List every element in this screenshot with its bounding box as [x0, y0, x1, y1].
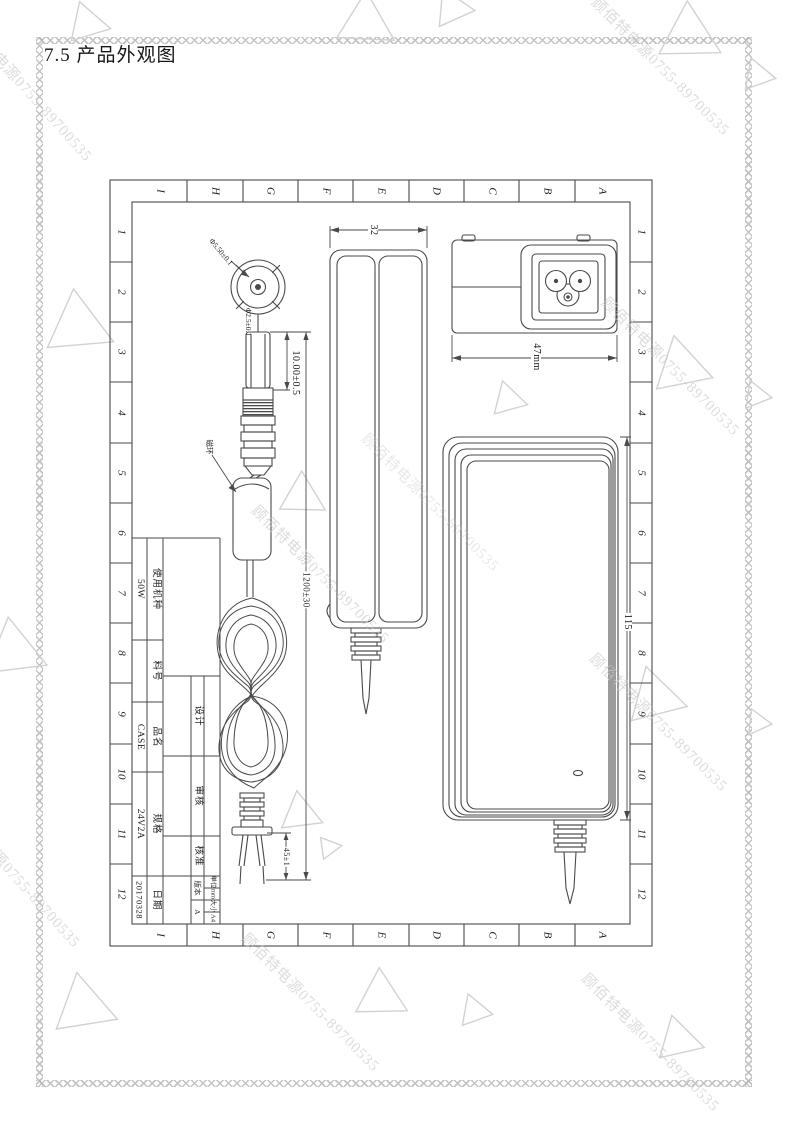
zone-letter: F: [321, 188, 332, 195]
titleblock-label-spec: 规格: [150, 813, 160, 834]
titleblock-label-version: 版本: [193, 881, 201, 896]
titleblock-label-name: 品名: [150, 726, 160, 747]
titleblock-value-machine: 50W: [134, 579, 144, 599]
titleblock-label-design: 设计: [192, 705, 202, 726]
titleblock-label-approve: 核准: [192, 845, 202, 866]
zone-letter: E: [376, 188, 387, 195]
zone-letter: I: [155, 933, 166, 937]
inlet-view: [452, 235, 617, 333]
titleblock-label-date: 日期: [150, 889, 160, 910]
zone-letter: A: [597, 932, 608, 939]
zone-letter: C: [487, 931, 498, 938]
zone-letter: B: [542, 932, 553, 939]
zone-number: 7: [636, 590, 647, 596]
zone-letter: D: [431, 931, 442, 939]
dim-plug-inner-dia: Φ2.5±0.1: [244, 307, 252, 337]
dim-inlet-width: 47mm: [531, 342, 541, 372]
titleblock-label-unit: 单位: [209, 876, 216, 889]
zone-number: 7: [116, 590, 127, 596]
titleblock-value-date: 20170328: [135, 881, 144, 919]
dim-front-length: 115: [622, 613, 632, 631]
titleblock-label-size: 大小: [209, 900, 216, 913]
zone-letter: I: [155, 189, 166, 193]
dim-side-thickness: 32: [368, 224, 378, 237]
zone-letter: F: [321, 932, 332, 939]
titleblock-value-spec: 24V2A: [134, 809, 144, 839]
zone-letter: C: [487, 187, 498, 194]
zone-number: 11: [116, 829, 127, 839]
zone-number: 5: [636, 470, 647, 476]
zone-number: 10: [116, 769, 127, 780]
zone-letter: B: [542, 188, 553, 195]
led-indicator: [574, 770, 583, 775]
zone-number: 12: [636, 889, 647, 900]
dim-plug-length: 10.00±0.5: [290, 350, 300, 397]
zone-number: 10: [636, 769, 647, 780]
zone-number: 6: [636, 530, 647, 536]
zone-letter: H: [210, 187, 221, 195]
zone-number: 9: [116, 711, 127, 717]
zone-letter: A: [597, 188, 608, 195]
zone-number: 3: [116, 349, 127, 355]
titleblock-label-machine: 使用机种: [150, 568, 160, 610]
zone-number: 2: [636, 289, 647, 295]
dim-strip-length: 45±1: [282, 847, 290, 867]
titleblock-value-name: CASE: [134, 724, 144, 750]
zone-letter: E: [376, 932, 387, 939]
zone-number: 1: [116, 229, 127, 235]
titleblock-label-partno: 料号: [150, 660, 160, 681]
titleblock-value-version: A: [193, 909, 201, 914]
zone-number: 4: [636, 410, 647, 416]
zone-number: 2: [116, 289, 127, 295]
cable-coil: [217, 598, 287, 788]
zone-number: 5: [116, 470, 127, 476]
front-view: [443, 437, 618, 904]
zone-number: 8: [116, 650, 127, 656]
zone-letter: G: [265, 931, 276, 939]
cable-assembly: [217, 260, 287, 884]
zone-letter: D: [431, 187, 442, 195]
zone-letter: G: [265, 187, 276, 195]
zone-number: 6: [116, 530, 127, 536]
titleblock-value-size: A4: [209, 914, 216, 922]
zone-number: 11: [636, 829, 647, 839]
zone-number: 12: [116, 889, 127, 900]
zone-letter: H: [210, 931, 221, 939]
zone-number: 8: [636, 650, 647, 656]
title-block-grid: [132, 538, 220, 924]
drawing-canvas: [0, 0, 800, 1132]
titleblock-label-review: 审核: [192, 785, 202, 806]
titleblock-value-unit: mm: [209, 889, 216, 899]
document-page: 7.5 产品外观图: [0, 0, 800, 1132]
zone-number: 4: [116, 410, 127, 416]
callout-ferrite-bead: 磁环: [205, 440, 213, 455]
zone-number: 1: [636, 229, 647, 235]
